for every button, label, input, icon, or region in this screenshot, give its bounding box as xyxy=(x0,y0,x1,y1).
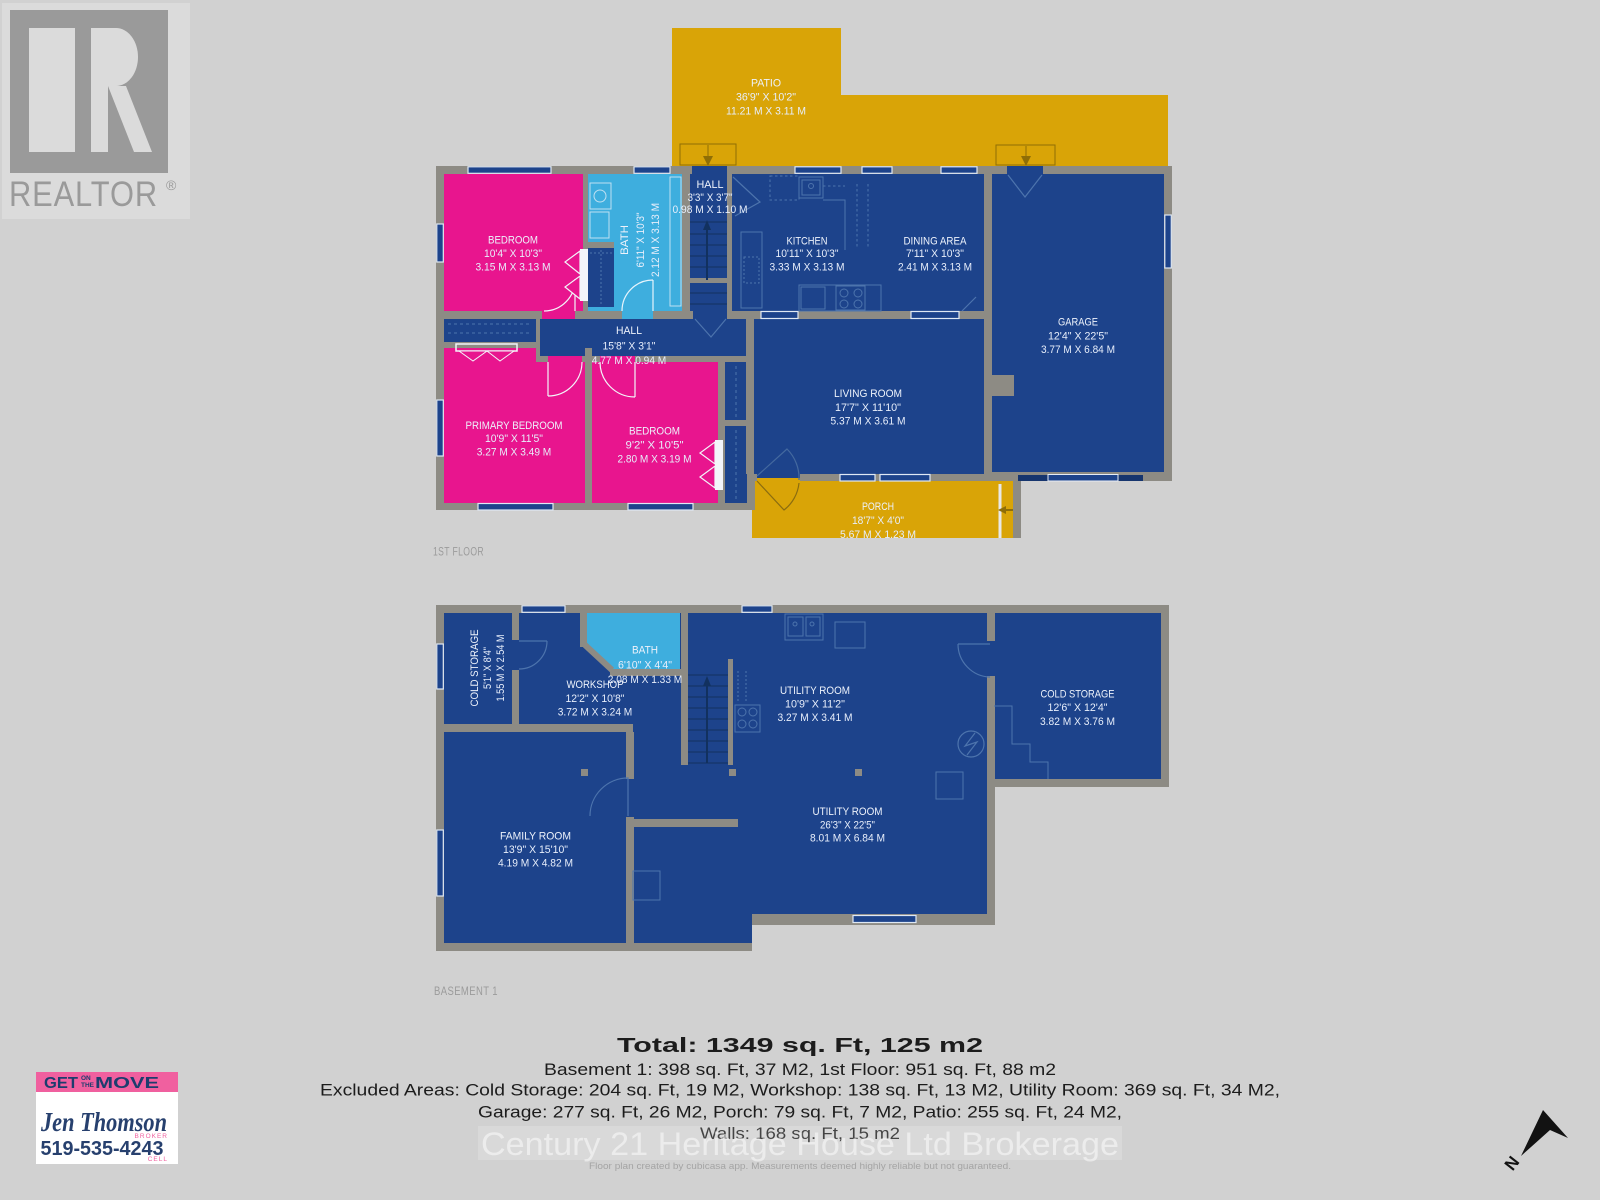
svg-text:10'11" X 10'3": 10'11" X 10'3" xyxy=(776,248,839,260)
svg-text:Total: 1349 sq. Ft, 125 m2: Total: 1349 sq. Ft, 125 m2 xyxy=(617,1035,983,1057)
svg-text:3.15 M X 3.13 M: 3.15 M X 3.13 M xyxy=(476,262,551,274)
svg-text:COLD STORAGE: COLD STORAGE xyxy=(1041,689,1115,701)
svg-text:1ST FLOOR: 1ST FLOOR xyxy=(433,547,484,559)
svg-text:10'9" X 11'5": 10'9" X 11'5" xyxy=(485,433,543,445)
svg-text:Excluded Areas: Cold Storage:: Excluded Areas: Cold Storage: 204 sq. Ft… xyxy=(320,1082,1280,1100)
svg-text:2.08 M X 1.33 M: 2.08 M X 1.33 M xyxy=(608,674,683,686)
svg-text:FAMILY ROOM: FAMILY ROOM xyxy=(500,831,571,843)
svg-text:7'11" X 10'3": 7'11" X 10'3" xyxy=(906,248,964,260)
svg-text:15'8" X 3'1": 15'8" X 3'1" xyxy=(603,341,656,353)
svg-text:12'4" X 22'5": 12'4" X 22'5" xyxy=(1048,331,1108,343)
svg-text:PRIMARY BEDROOM: PRIMARY BEDROOM xyxy=(466,420,563,432)
svg-text:26'3" X 22'5": 26'3" X 22'5" xyxy=(820,820,875,832)
svg-text:PORCH: PORCH xyxy=(862,501,894,513)
svg-text:Floor plan created by cubicasa: Floor plan created by cubicasa app. Meas… xyxy=(589,1161,1011,1172)
svg-text:LIVING ROOM: LIVING ROOM xyxy=(834,388,902,400)
svg-text:6'11" X 10'3": 6'11" X 10'3" xyxy=(635,212,647,267)
svg-text:HALL: HALL xyxy=(616,325,642,337)
svg-text:ON: ON xyxy=(81,1075,91,1082)
svg-text:3.77 M X 6.84 M: 3.77 M X 6.84 M xyxy=(1041,344,1115,356)
svg-text:8.01 M X 6.84 M: 8.01 M X 6.84 M xyxy=(810,833,885,845)
svg-text:CELL: CELL xyxy=(148,1156,168,1163)
svg-text:18'7" X 4'0": 18'7" X 4'0" xyxy=(852,515,904,527)
svg-text:KITCHEN: KITCHEN xyxy=(787,236,828,248)
svg-text:3.27 M X 3.41 M: 3.27 M X 3.41 M xyxy=(778,712,853,724)
svg-text:GARAGE: GARAGE xyxy=(1058,317,1098,329)
svg-text:HALL: HALL xyxy=(697,179,724,191)
svg-text:MOVE: MOVE xyxy=(95,1075,159,1092)
svg-text:2.41 M X 3.13 M: 2.41 M X 3.13 M xyxy=(898,262,972,274)
svg-text:2.80 M X 3.19 M: 2.80 M X 3.19 M xyxy=(618,454,692,466)
svg-text:0.98 M X 1.10 M: 0.98 M X 1.10 M xyxy=(673,204,748,216)
svg-text:PATIO: PATIO xyxy=(751,78,781,90)
svg-text:6'10" X 4'4": 6'10" X 4'4" xyxy=(618,660,672,672)
svg-text:11.21 M X 3.11 M: 11.21 M X 3.11 M xyxy=(726,106,806,118)
svg-text:36'9" X 10'2": 36'9" X 10'2" xyxy=(736,92,796,104)
svg-text:1.55 M X 2.54 M: 1.55 M X 2.54 M xyxy=(495,635,507,702)
svg-text:3.72 M X 3.24 M: 3.72 M X 3.24 M xyxy=(558,707,633,719)
svg-text:12'2" X 10'8": 12'2" X 10'8" xyxy=(566,693,625,705)
svg-text:4.77 M X 0.94 M: 4.77 M X 0.94 M xyxy=(592,355,667,367)
svg-text:3.82 M X 3.76 M: 3.82 M X 3.76 M xyxy=(1040,716,1115,728)
svg-text:UTILITY ROOM: UTILITY ROOM xyxy=(780,685,850,697)
svg-text:DINING AREA: DINING AREA xyxy=(904,236,967,248)
svg-text:3.27 M X 3.49 M: 3.27 M X 3.49 M xyxy=(477,447,552,459)
svg-text:4.19 M X 4.82 M: 4.19 M X 4.82 M xyxy=(498,858,573,870)
svg-text:COLD STORAGE: COLD STORAGE xyxy=(469,630,481,707)
svg-text:2.12 M X 3.13 M: 2.12 M X 3.13 M xyxy=(650,203,662,277)
svg-text:10'9" X 11'2": 10'9" X 11'2" xyxy=(785,699,845,711)
svg-text:519-535-4243: 519-535-4243 xyxy=(41,1138,164,1160)
svg-text:®: ® xyxy=(166,177,177,193)
svg-text:12'6" X 12'4": 12'6" X 12'4" xyxy=(1048,702,1108,714)
svg-text:UTILITY ROOM: UTILITY ROOM xyxy=(813,806,883,818)
svg-text:5'1" X 8'4": 5'1" X 8'4" xyxy=(482,647,494,689)
svg-text:9'2" X 10'5": 9'2" X 10'5" xyxy=(626,440,684,452)
svg-text:GET: GET xyxy=(44,1075,78,1092)
svg-text:Century 21 Heritage House Ltd: Century 21 Heritage House Ltd Brokerage xyxy=(481,1126,1119,1162)
svg-text:THE: THE xyxy=(81,1082,95,1089)
svg-text:BASEMENT 1: BASEMENT 1 xyxy=(434,986,498,998)
svg-text:17'7" X 11'10": 17'7" X 11'10" xyxy=(835,402,901,414)
svg-text:10'4" X 10'3": 10'4" X 10'3" xyxy=(484,248,542,260)
svg-text:BEDROOM: BEDROOM xyxy=(629,426,680,438)
svg-text:BATH: BATH xyxy=(619,225,631,255)
svg-text:Basement 1: 398 sq. Ft, 37 M2,: Basement 1: 398 sq. Ft, 37 M2, 1st Floor… xyxy=(544,1061,1056,1079)
svg-text:BEDROOM: BEDROOM xyxy=(488,235,538,247)
svg-text:3.33 M X 3.13 M: 3.33 M X 3.13 M xyxy=(770,262,845,274)
svg-text:REALTOR: REALTOR xyxy=(9,175,158,214)
svg-text:3'3" X 3'7": 3'3" X 3'7" xyxy=(688,192,733,204)
svg-text:13'9" X 15'10": 13'9" X 15'10" xyxy=(503,844,568,856)
svg-text:BATH: BATH xyxy=(632,645,658,657)
svg-text:5.37 M X 3.61 M: 5.37 M X 3.61 M xyxy=(831,416,906,428)
svg-text:5.67 M X 1.23 M: 5.67 M X 1.23 M xyxy=(840,529,916,541)
svg-text:Garage: 277 sq. Ft, 26 M2, Por: Garage: 277 sq. Ft, 26 M2, Porch: 79 sq.… xyxy=(478,1104,1122,1122)
